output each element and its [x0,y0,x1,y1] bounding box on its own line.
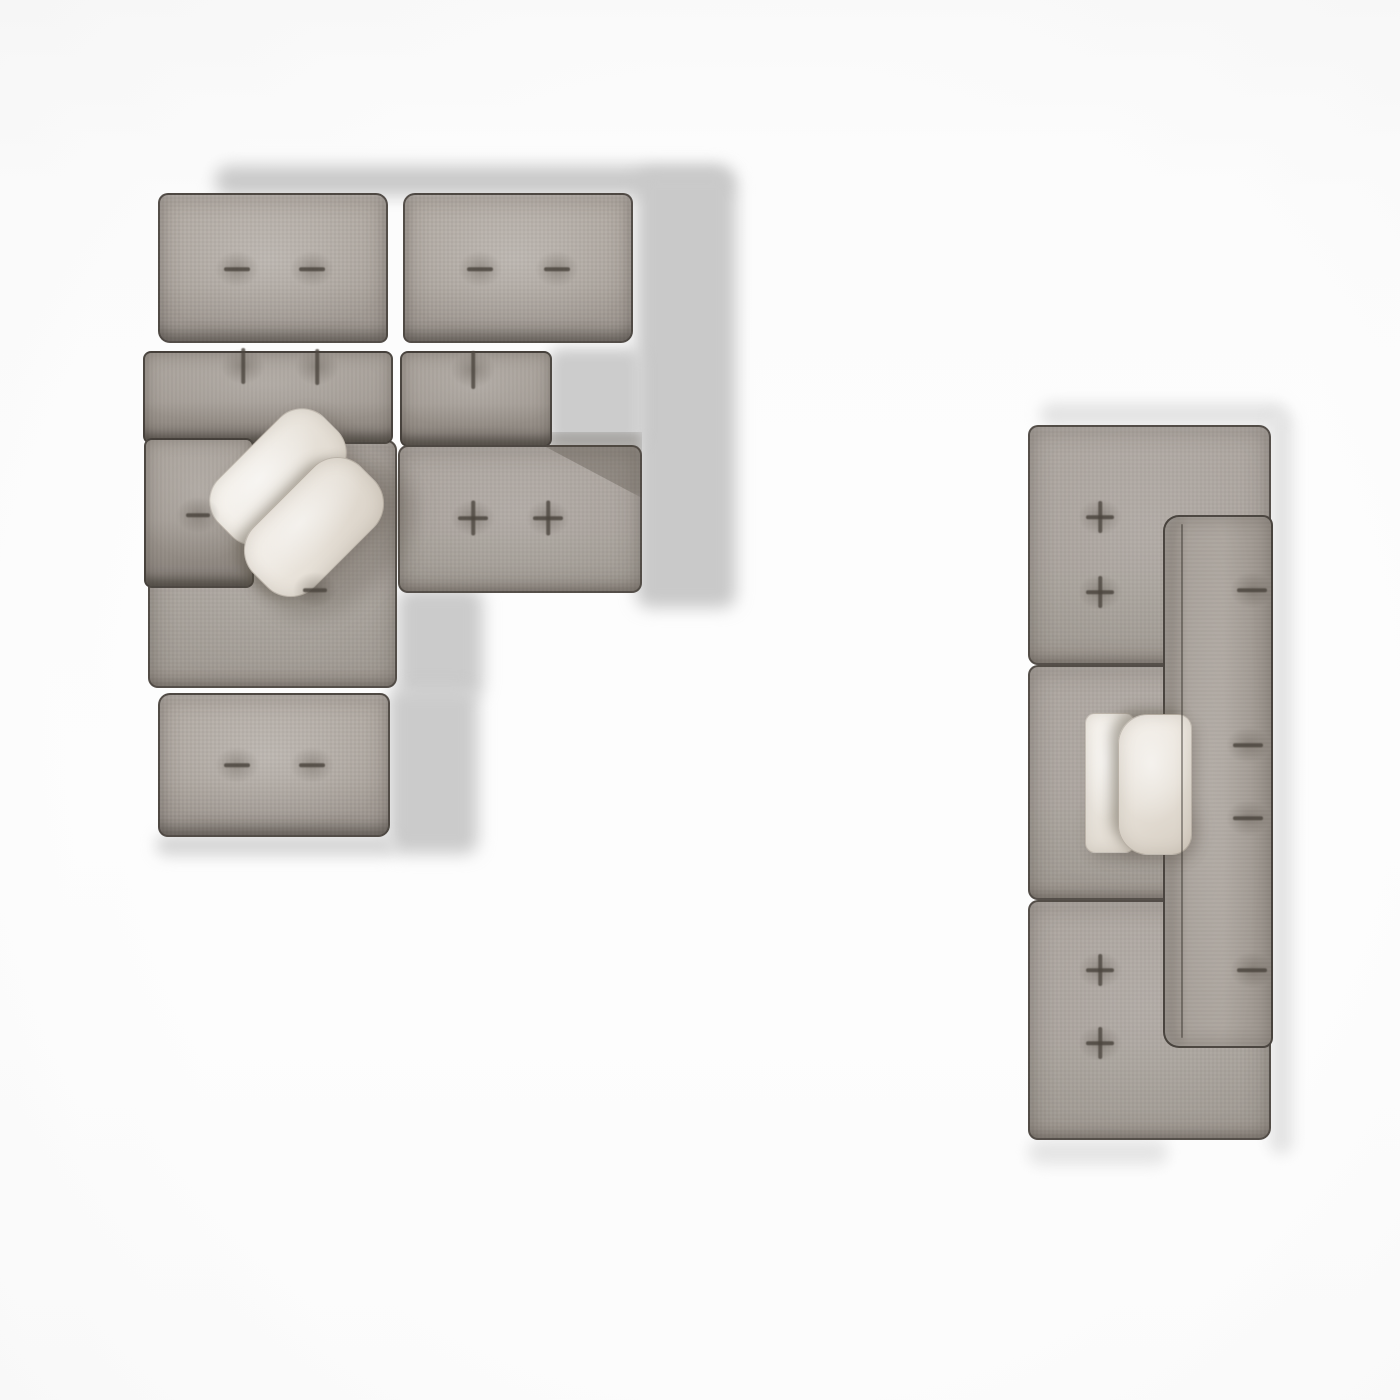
tufting-button-mark [1078,952,1122,988]
tuft-dash [1237,588,1267,592]
modular-sofa-right [0,0,1400,1400]
tufting-button-mark [1226,800,1270,836]
tufting-button-mark [1230,952,1274,988]
backrest-ridge [1181,524,1183,1038]
tuft-dash-vertical [1098,1027,1102,1059]
tuft-dash-vertical [1098,501,1102,533]
tufting-button-mark [1078,574,1122,610]
tuft-dash [1233,816,1263,820]
floor-shadow-top [1040,403,1286,427]
tuft-dash-vertical [1098,576,1102,608]
tuft-dash-vertical [1098,954,1102,986]
tufting-button-mark [1230,572,1274,608]
tufting-button-mark [1078,499,1122,535]
floor-shadow-bottom [1028,1139,1168,1165]
floorplan-canvas [0,0,1400,1400]
tufting-button-mark [1078,1025,1122,1061]
tuft-dash [1237,968,1267,972]
tuft-dash [1233,743,1263,747]
tufting-button-mark [1226,727,1270,763]
